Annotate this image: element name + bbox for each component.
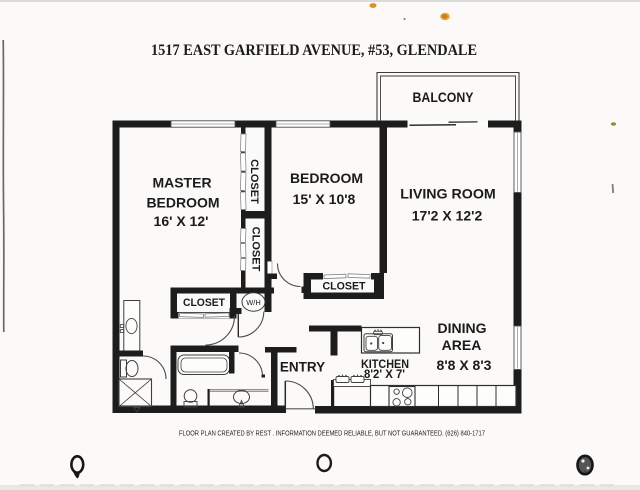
svg-text:BALCONY: BALCONY: [413, 89, 475, 105]
svg-text:8'2' X 7': 8'2' X 7': [364, 367, 405, 381]
svg-text:1517 EAST GARFIELD AVENUE, #53: 1517 EAST GARFIELD AVENUE, #53, GLENDALE: [151, 42, 477, 59]
svg-text:CLOSET: CLOSET: [249, 227, 261, 272]
svg-text:MASTER: MASTER: [152, 175, 211, 191]
svg-text:BEDROOM: BEDROOM: [290, 170, 363, 186]
svg-text:BEDROOM: BEDROOM: [146, 195, 219, 211]
svg-text:16' X 12': 16' X 12': [154, 213, 209, 229]
svg-text:W/H: W/H: [246, 298, 261, 307]
svg-text:15' X 10'8: 15' X 10'8: [293, 191, 356, 207]
svg-text:CLOSET: CLOSET: [248, 159, 260, 204]
svg-text:LIVING ROOM: LIVING ROOM: [400, 185, 496, 201]
svg-text:DINING: DINING: [438, 320, 487, 336]
svg-text:17'2 X 12'2: 17'2 X 12'2: [412, 208, 483, 224]
svg-text:CLOSET: CLOSET: [323, 281, 366, 293]
svg-text:FLOOR PLAN CREATED BY REST: FLOOR PLAN CREATED BY REST . INFORMATION…: [179, 429, 485, 438]
svg-text:CLOSET: CLOSET: [183, 297, 225, 309]
svg-text:ENTRY: ENTRY: [280, 360, 325, 375]
svg-text:AREA: AREA: [442, 337, 482, 353]
svg-text:8'8 X 8'3: 8'8 X 8'3: [437, 357, 492, 373]
